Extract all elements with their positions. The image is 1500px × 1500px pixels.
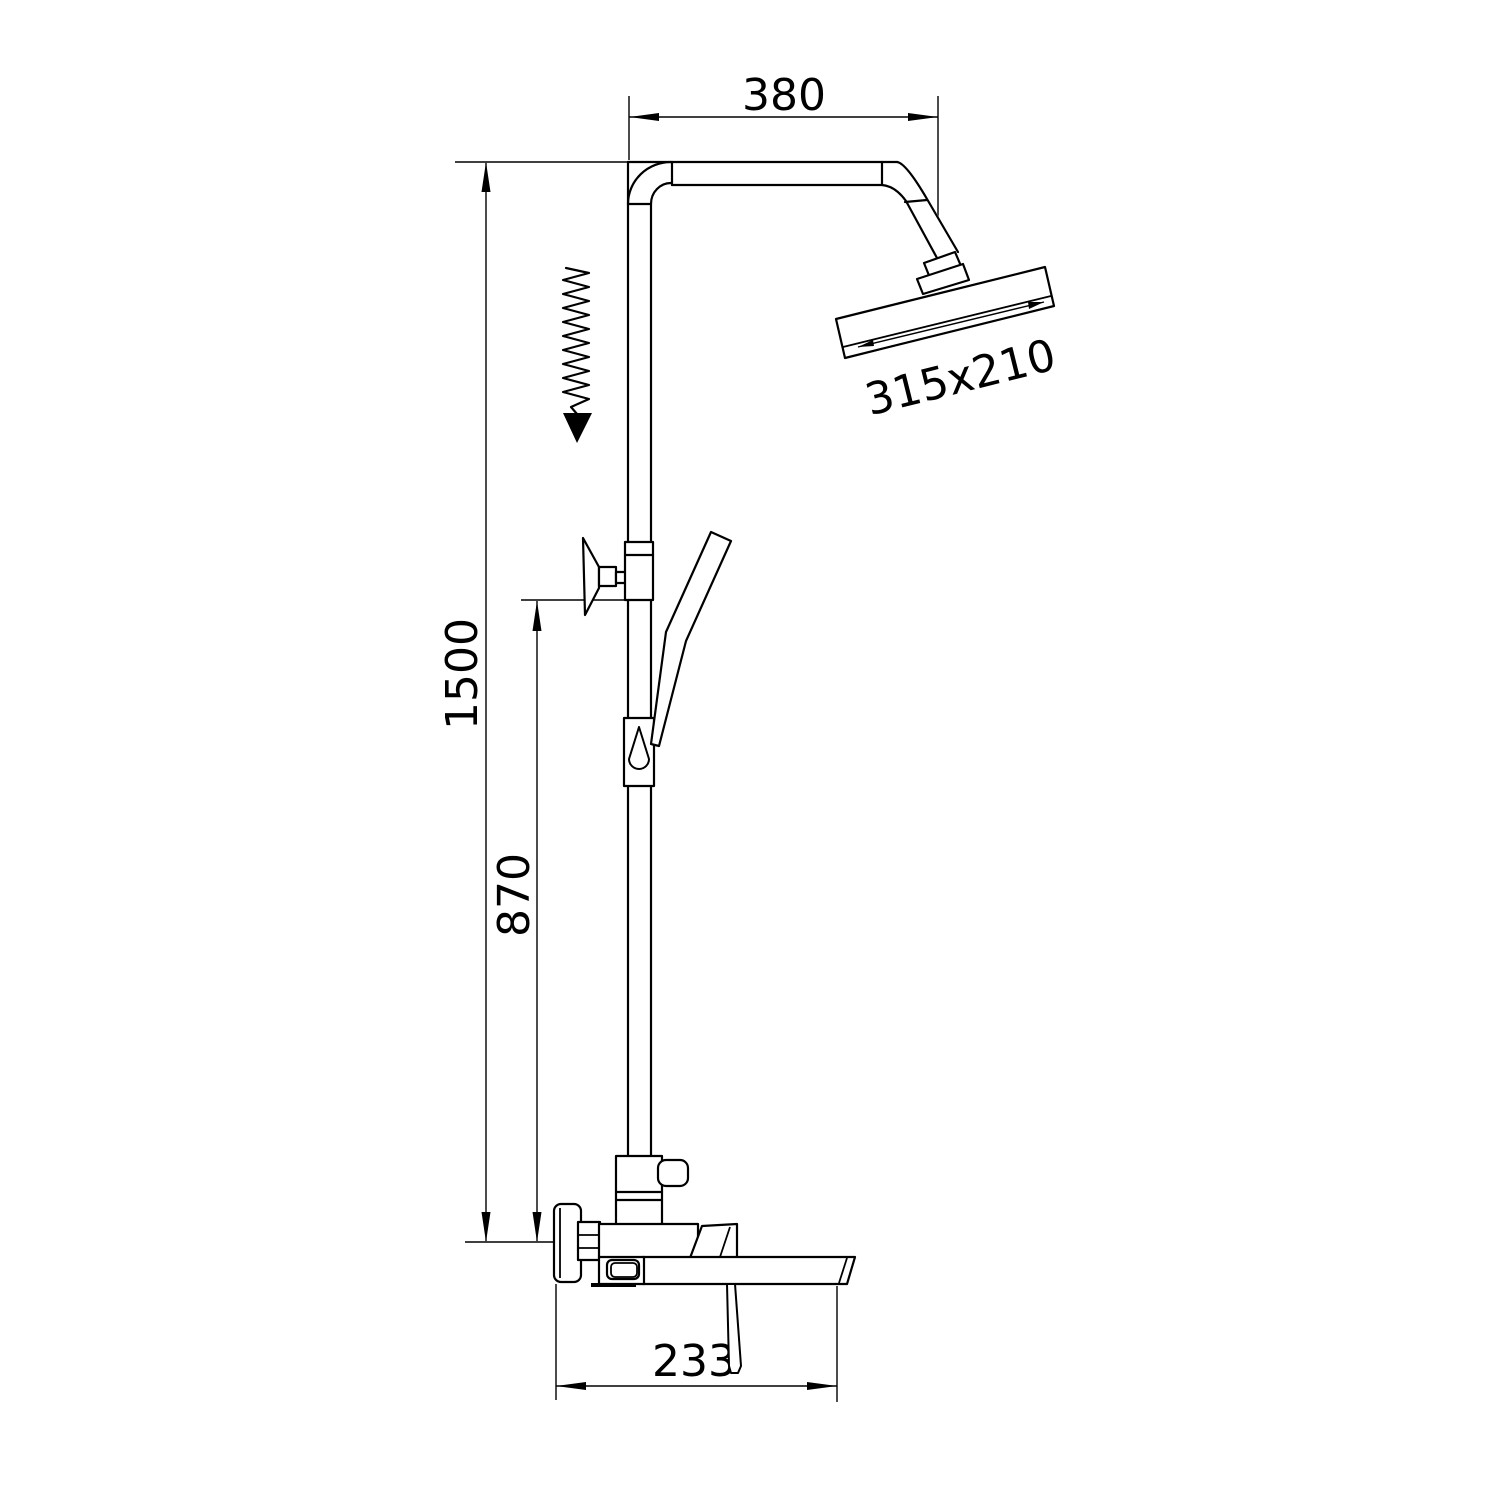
bracket-cone — [583, 538, 599, 615]
arrowhead-right-icon — [807, 1382, 837, 1390]
rain-shower-head: 315x210 — [836, 252, 1061, 426]
dim-label-spout-reach: 233 — [652, 1336, 736, 1387]
spring-zigzag — [563, 268, 589, 414]
hand-shower — [651, 532, 731, 746]
hand-shower-slider — [624, 718, 654, 786]
elbow-fill — [882, 162, 959, 259]
bracket-stem — [599, 567, 616, 586]
riser-pipe-fill — [628, 162, 651, 1157]
mixer-body — [599, 1224, 698, 1258]
arrowhead-up-icon — [482, 162, 491, 192]
dim-label-arm-width: 380 — [742, 70, 826, 121]
dimension-spout-reach: 233 — [556, 1284, 837, 1402]
arm-fill — [628, 162, 882, 185]
arrowhead-down-icon — [533, 1212, 542, 1242]
arrowhead-right-icon — [908, 113, 938, 121]
connector-nut — [578, 1222, 600, 1260]
elbow-inner-arc — [651, 183, 671, 204]
spring-arrow-down-icon — [563, 413, 592, 443]
drawing-canvas: 380 1500 870 233 — [0, 0, 1500, 1500]
arrowhead-up-icon — [533, 601, 542, 631]
hand-shower-wand — [651, 532, 731, 746]
diverter-knob — [658, 1160, 688, 1186]
bracket-slider-block — [625, 542, 653, 600]
arrowhead-left-icon — [629, 113, 659, 121]
arrowhead-left-icon — [556, 1382, 586, 1390]
dimension-total-height: 1500 — [437, 162, 628, 1242]
arrowhead-down-icon — [482, 1212, 491, 1242]
tub-spout — [643, 1257, 855, 1284]
shower-column-technical-drawing: 380 1500 870 233 — [0, 0, 1500, 1500]
dim-label-mixer-height: 870 — [489, 853, 540, 937]
mixer-lever-handle — [727, 1284, 741, 1373]
dimension-mixer-height: 870 — [489, 600, 627, 1242]
dim-label-total-height: 1500 — [437, 618, 488, 730]
height-adjust-spring-icon — [563, 268, 592, 443]
